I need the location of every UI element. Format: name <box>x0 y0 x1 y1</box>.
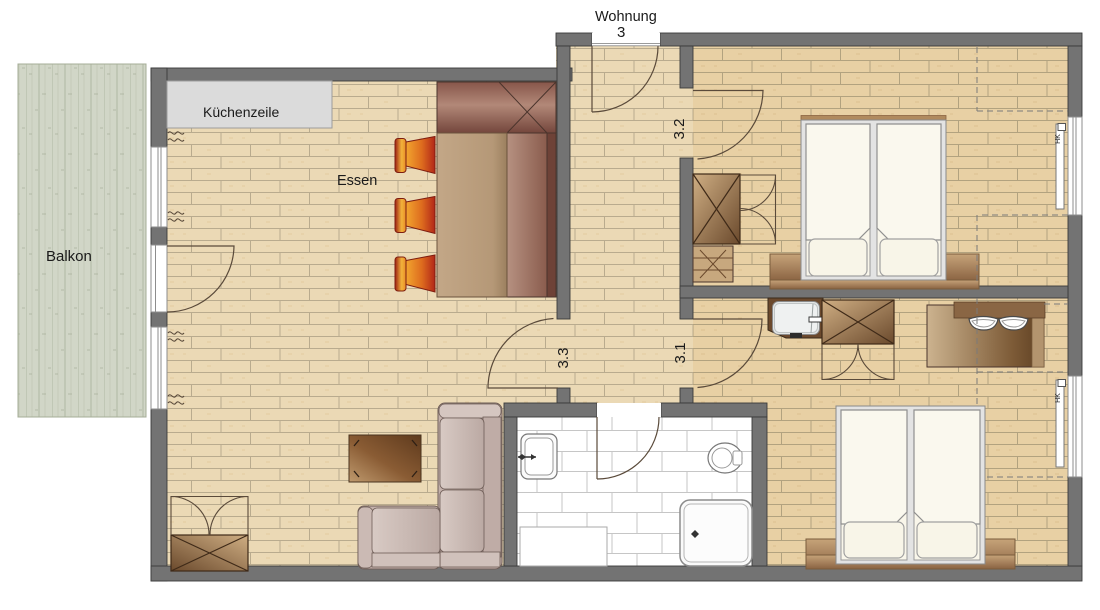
svg-text:3.3: 3.3 <box>555 348 572 369</box>
svg-text:3: 3 <box>617 24 625 41</box>
svg-text:3.2: 3.2 <box>671 119 688 140</box>
svg-text:Küchenzeile: Küchenzeile <box>203 104 279 120</box>
svg-text:Wohnung: Wohnung <box>595 9 657 25</box>
svg-text:3.1: 3.1 <box>672 343 689 364</box>
svg-text:HK: HK <box>1055 134 1062 144</box>
svg-text:Balkon: Balkon <box>46 248 92 265</box>
svg-text:Essen: Essen <box>337 173 377 189</box>
svg-text:HK: HK <box>1055 393 1062 403</box>
